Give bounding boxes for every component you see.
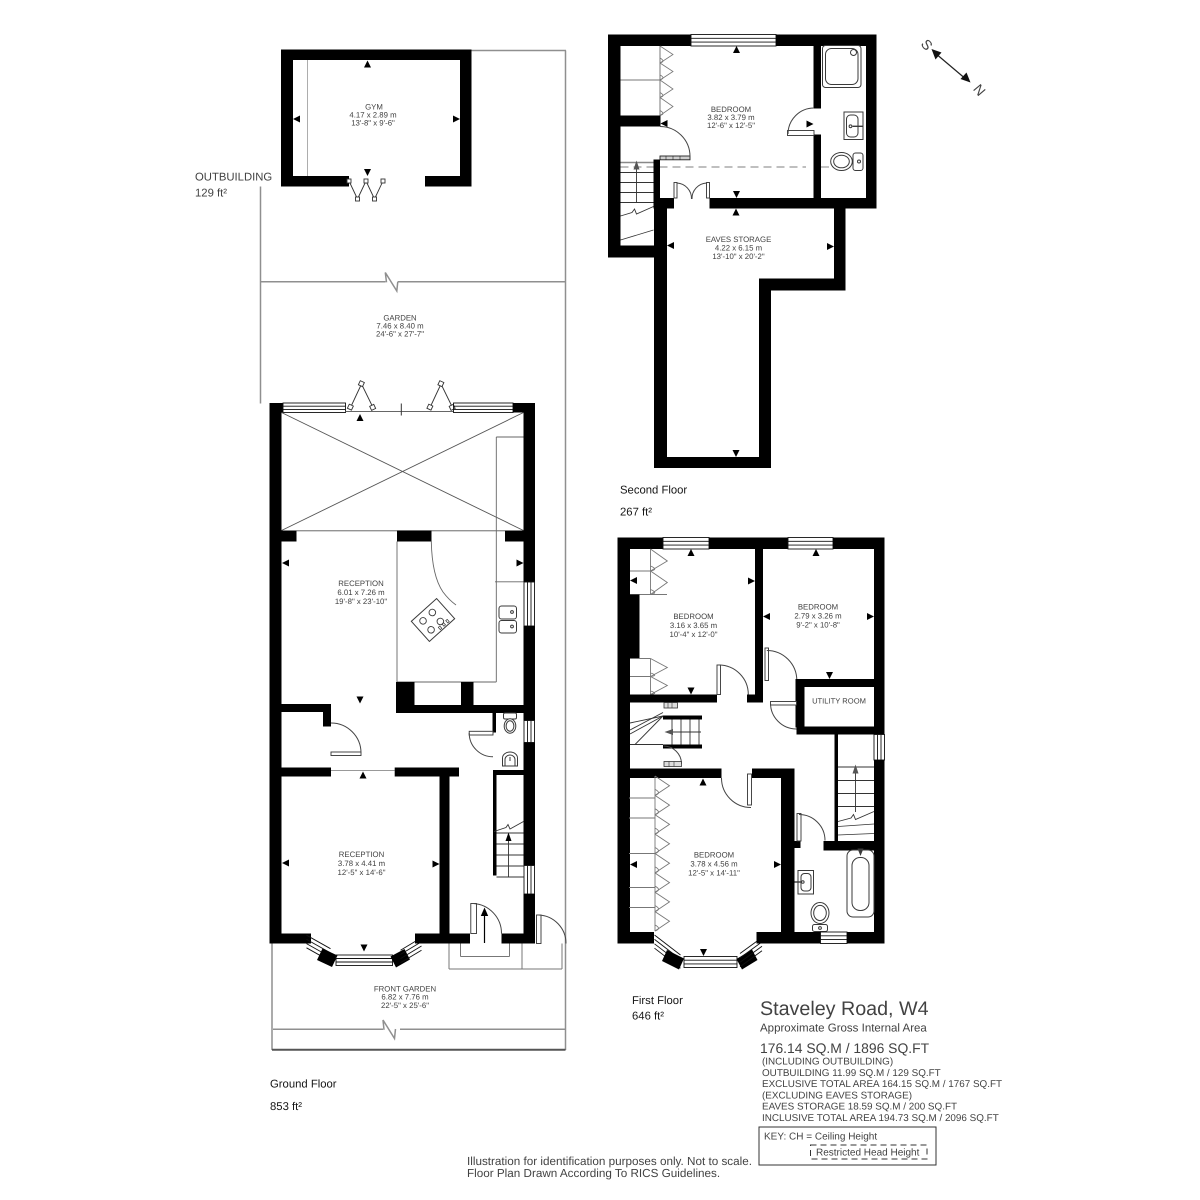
svg-text:KEY: CH = Ceiling Height: KEY: CH = Ceiling Height [764,1132,877,1143]
svg-text:12'-6" x 12'-5": 12'-6" x 12'-5" [707,121,755,130]
svg-text:12'-5" x 14'-6": 12'-5" x 14'-6" [338,868,386,877]
svg-text:EAVES STORAGE 18.59 SQ.M / 2: EAVES STORAGE 18.59 SQ.M / 200 SQ.FT [762,1102,957,1113]
svg-text:9'-2" x 10'-8": 9'-2" x 10'-8" [796,621,840,630]
svg-text:2.79 x 3.26 m: 2.79 x 3.26 m [794,612,841,621]
svg-text:Floor Plan Drawn According To: Floor Plan Drawn According To RICS Guide… [467,1167,720,1180]
svg-text:(EXCLUDING EAVES STORAGE): (EXCLUDING EAVES STORAGE) [762,1090,912,1101]
svg-text:3.78 x 4.56 m: 3.78 x 4.56 m [690,860,737,869]
svg-text:BEDROOM: BEDROOM [798,603,838,612]
svg-text:Restricted Head Height: Restricted Head Height [816,1148,920,1159]
svg-text:Staveley Road, W4: Staveley Road, W4 [760,998,929,1020]
svg-text:BEDROOM: BEDROOM [673,612,713,621]
svg-text:Approximate Gross Internal Are: Approximate Gross Internal Area [760,1023,927,1035]
svg-text:13'-10" x 20'-2": 13'-10" x 20'-2" [712,252,765,261]
svg-text:UTILITY ROOM: UTILITY ROOM [812,697,866,706]
svg-text:OUTBUILDING 11.99 SQ.M / 129: OUTBUILDING 11.99 SQ.M / 129 SQ.FT [762,1068,941,1079]
svg-text:Second Floor: Second Floor [620,485,687,497]
svg-text:176.14 SQ.M / 1896 SQ.FT: 176.14 SQ.M / 1896 SQ.FT [760,1040,930,1056]
svg-text:RECEPTION: RECEPTION [339,850,385,859]
svg-text:853 ft²: 853 ft² [270,1101,302,1113]
svg-text:10'-4" x 12'-0": 10'-4" x 12'-0" [670,630,718,639]
svg-text:19'-8" x 23'-10": 19'-8" x 23'-10" [335,597,388,606]
svg-text:22'-5" x 25'-6": 22'-5" x 25'-6" [381,1001,429,1010]
svg-text:267 ft²: 267 ft² [620,507,652,519]
svg-text:RECEPTION: RECEPTION [338,579,384,588]
svg-text:24'-6" x 27'-7": 24'-6" x 27'-7" [376,330,424,339]
svg-text:INCLUSIVE TOTAL AREA 194.73 SQ: INCLUSIVE TOTAL AREA 194.73 SQ.M / 2096 … [762,1113,999,1124]
svg-text:12'-5" x 14'-11": 12'-5" x 14'-11" [688,869,740,878]
svg-text:Ground Floor: Ground Floor [270,1079,337,1091]
svg-text:First Floor: First Floor [632,995,683,1007]
svg-text:OUTBUILDING: OUTBUILDING [195,172,272,184]
svg-text:6.01 x 7.26 m: 6.01 x 7.26 m [337,588,384,597]
svg-text:13'-8" x 9'-6": 13'-8" x 9'-6" [351,119,395,128]
svg-text:BEDROOM: BEDROOM [694,851,734,860]
svg-text:(INCLUDING OUTBUILDING): (INCLUDING OUTBUILDING) [762,1057,893,1068]
svg-text:EXCLUSIVE TOTAL AREA 164.15 SQ: EXCLUSIVE TOTAL AREA 164.15 SQ.M / 1767 … [762,1079,1002,1090]
svg-text:3.16 x 3.65 m: 3.16 x 3.65 m [670,621,717,630]
svg-text:646 ft²: 646 ft² [632,1011,664,1023]
svg-text:129 ft²: 129 ft² [195,188,227,200]
svg-text:3.78 x 4.41 m: 3.78 x 4.41 m [338,859,385,868]
